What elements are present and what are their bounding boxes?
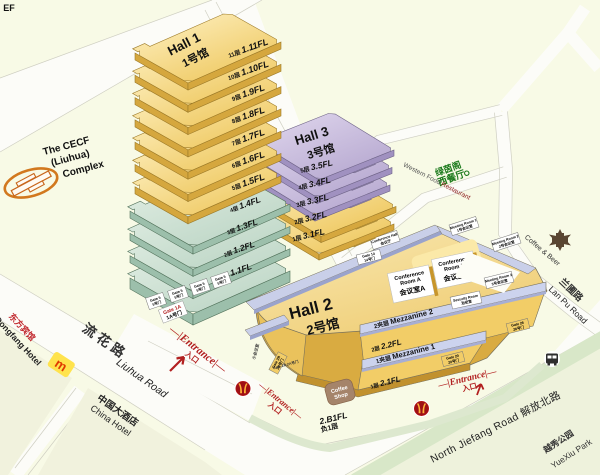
svg-text:EF: EF bbox=[3, 3, 15, 13]
